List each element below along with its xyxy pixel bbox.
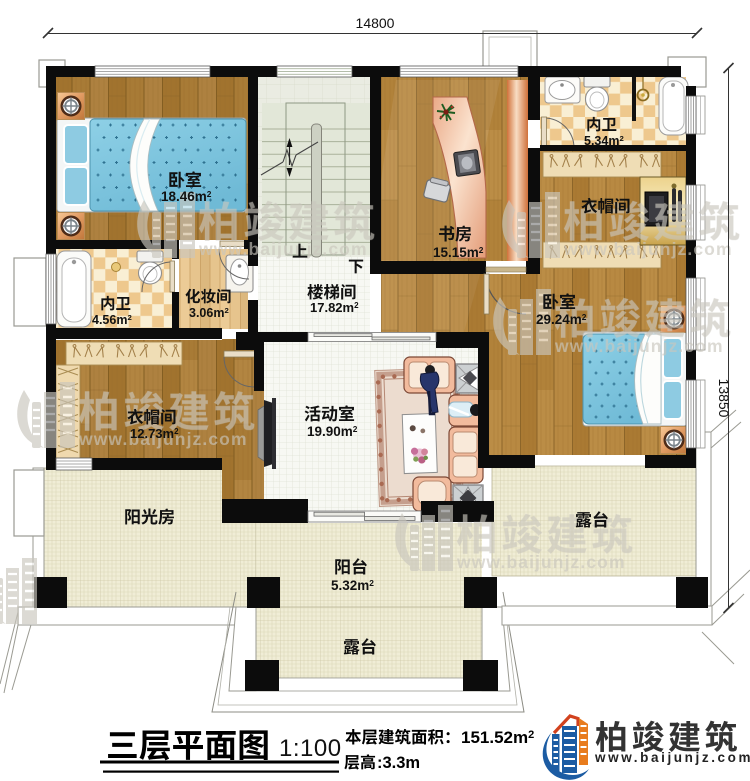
svg-text:15.15m2: 15.15m2 — [433, 245, 484, 260]
svg-text:5.32m2: 5.32m2 — [331, 578, 374, 593]
svg-text:151.52m2: 151.52m2 — [461, 728, 534, 747]
svg-text:17.82m2: 17.82m2 — [310, 300, 359, 315]
svg-text:19.90m2: 19.90m2 — [307, 424, 358, 439]
svg-text:www.baijunjz.com: www.baijunjz.com — [456, 552, 626, 572]
svg-text:14800: 14800 — [356, 15, 395, 31]
svg-text:www.baijunjz.com: www.baijunjz.com — [563, 239, 733, 259]
svg-text:13850: 13850 — [716, 379, 732, 418]
svg-text:12.73m2: 12.73m2 — [130, 426, 179, 441]
svg-text:29.24m2: 29.24m2 — [536, 312, 587, 327]
svg-text::3.3m: :3.3m — [377, 754, 420, 772]
svg-text:5.34m2: 5.34m2 — [584, 134, 624, 148]
svg-text:3.06m2: 3.06m2 — [189, 306, 229, 320]
svg-text:4.56m2: 4.56m2 — [92, 313, 132, 327]
svg-text:1:100: 1:100 — [279, 735, 342, 762]
svg-text:www.baijunjz.com: www.baijunjz.com — [554, 336, 724, 356]
svg-text:www.baijunjz.com: www.baijunjz.com — [198, 239, 368, 259]
svg-text:18.46m2: 18.46m2 — [161, 189, 212, 204]
svg-text:www.baijunjz.com: www.baijunjz.com — [594, 750, 750, 765]
